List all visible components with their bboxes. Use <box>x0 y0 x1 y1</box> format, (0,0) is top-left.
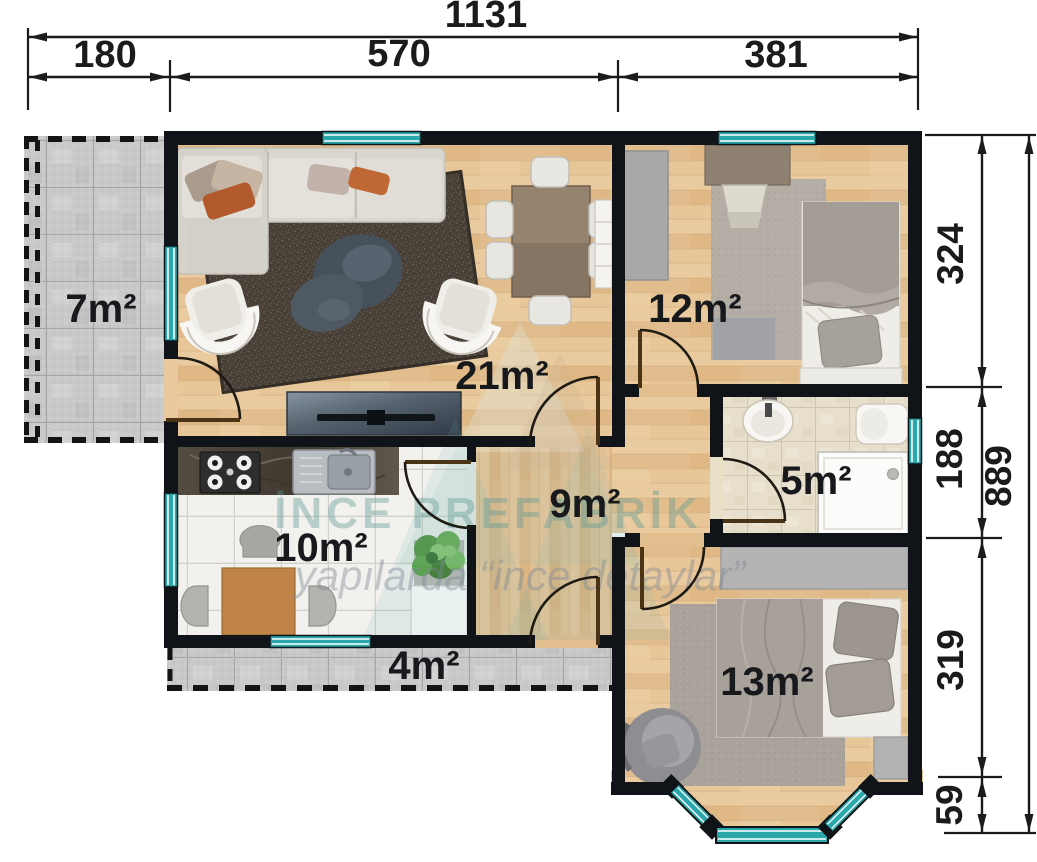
svg-text:21m²: 21m² <box>455 354 548 398</box>
svg-text:7m²: 7m² <box>65 287 136 331</box>
svg-text:9m²: 9m² <box>549 482 620 526</box>
svg-text:570: 570 <box>367 33 430 75</box>
svg-text:12m²: 12m² <box>648 287 741 331</box>
svg-text:324: 324 <box>930 223 971 285</box>
svg-text:4m²: 4m² <box>388 644 459 688</box>
svg-text:10m²: 10m² <box>274 526 367 570</box>
svg-text:889: 889 <box>978 445 1019 507</box>
svg-text:5m²: 5m² <box>780 459 851 503</box>
svg-text:381: 381 <box>744 34 807 76</box>
svg-text:319: 319 <box>930 629 971 691</box>
svg-text:59: 59 <box>929 784 970 825</box>
svg-text:1131: 1131 <box>445 0 527 36</box>
svg-text:188: 188 <box>929 428 970 490</box>
svg-text:13m²: 13m² <box>720 660 813 704</box>
svg-text:180: 180 <box>73 34 136 76</box>
